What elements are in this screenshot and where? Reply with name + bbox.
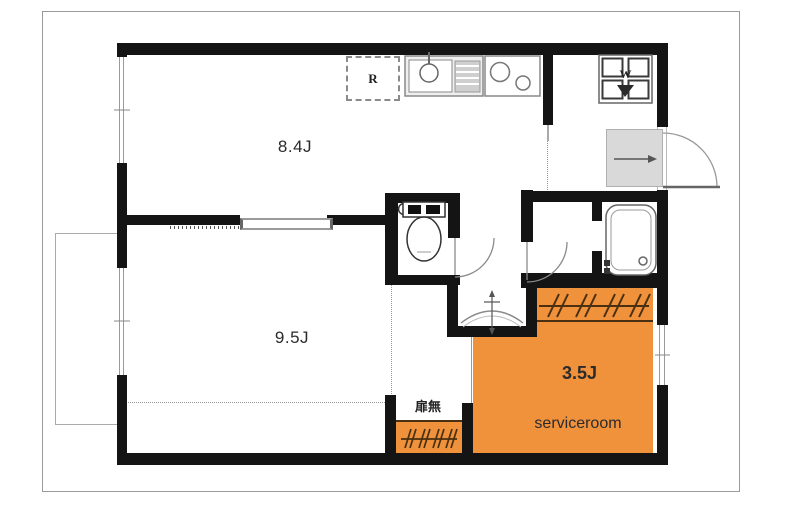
serviceroom-area-left xyxy=(473,337,531,453)
kitchen-boundary-line xyxy=(547,125,549,141)
serviceroom-wall xyxy=(462,403,473,465)
room-divider-wall xyxy=(117,215,240,225)
room-label-serviceroom-size: 3.5J xyxy=(537,363,622,384)
door-track-ticks xyxy=(170,226,240,229)
wall-right-segment xyxy=(657,43,668,127)
window xyxy=(657,325,668,385)
no-door-annotation: 扉無 xyxy=(404,396,452,415)
washer-label: W xyxy=(599,67,652,82)
bath-wall xyxy=(592,251,602,285)
entrance-jamb-line xyxy=(666,127,667,190)
kitchen-wall-stub xyxy=(543,55,553,125)
room-label-bedroom: 9.5J xyxy=(252,328,332,348)
room-boundary-dotted xyxy=(128,402,391,403)
bedroom-closet-area xyxy=(396,420,462,455)
wall-right-segment xyxy=(657,190,668,325)
wall-left-segment xyxy=(117,43,127,57)
room-label-living: 8.4J xyxy=(255,137,335,157)
entrance-floor-pad xyxy=(606,129,663,187)
refrigerator-label: R xyxy=(368,71,377,87)
sliding-door xyxy=(240,218,333,230)
kitchen-boundary-dotted xyxy=(547,140,548,192)
balcony-outline xyxy=(55,233,120,425)
washbasin-wall xyxy=(447,326,537,337)
toilet-wall xyxy=(385,193,398,285)
floor-plan: R xyxy=(0,0,800,505)
bath-wall xyxy=(592,191,602,221)
room-label-serviceroom: serviceroom xyxy=(493,415,663,433)
room-divider-wall xyxy=(327,215,393,225)
washbasin-wall xyxy=(526,288,537,337)
wall-top xyxy=(117,43,668,55)
closet-divider-line xyxy=(531,320,653,322)
serviceroom-edge-line xyxy=(471,337,472,403)
toilet-wall xyxy=(448,193,460,238)
window xyxy=(117,268,127,375)
wall-left-segment xyxy=(117,375,127,465)
window xyxy=(117,57,127,163)
refrigerator-box: R xyxy=(346,56,400,101)
closet-wall xyxy=(385,395,396,465)
